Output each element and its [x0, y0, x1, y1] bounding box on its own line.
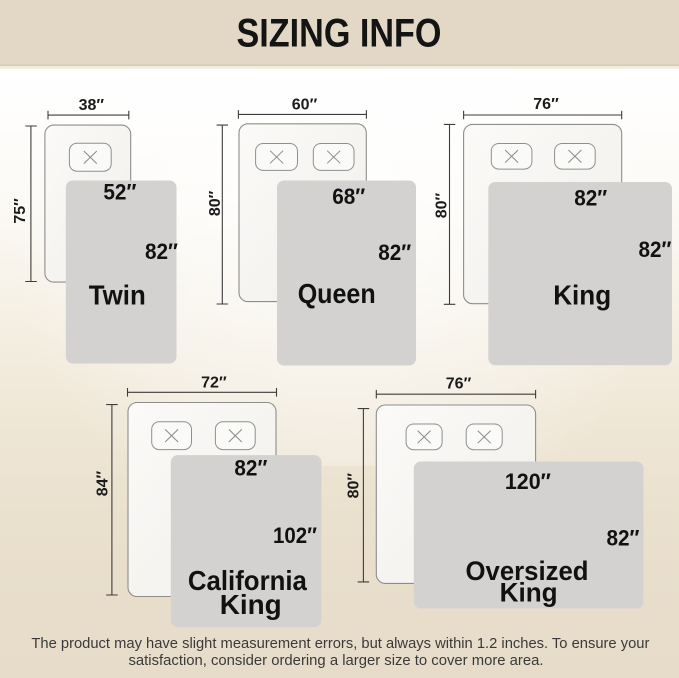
svg-text:82″: 82″	[607, 526, 640, 551]
svg-text:68″: 68″	[332, 184, 365, 209]
svg-text:King: King	[500, 578, 558, 608]
svg-text:80″: 80″	[346, 473, 363, 499]
svg-text:76″: 76″	[446, 376, 472, 393]
svg-text:satisfaction, consider orderin: satisfaction, consider ordering a larger…	[129, 652, 544, 669]
svg-text:38″: 38″	[79, 97, 105, 114]
svg-text:82″: 82″	[145, 239, 178, 264]
svg-text:75″: 75″	[12, 198, 29, 224]
svg-text:Queen: Queen	[298, 278, 376, 309]
svg-text:84″: 84″	[95, 470, 112, 496]
svg-text:120″: 120″	[505, 469, 551, 494]
svg-text:80″: 80″	[207, 190, 224, 216]
svg-text:60″: 60″	[292, 97, 318, 114]
svg-text:82″: 82″	[378, 240, 411, 265]
svg-text:52″: 52″	[103, 180, 136, 205]
svg-text:King: King	[553, 280, 611, 311]
svg-text:Twin: Twin	[89, 280, 146, 311]
svg-text:82″: 82″	[639, 237, 672, 262]
svg-text:72″: 72″	[201, 375, 227, 392]
svg-text:SIZING INFO: SIZING INFO	[237, 12, 442, 56]
svg-text:82″: 82″	[574, 185, 607, 210]
svg-text:102″: 102″	[273, 523, 317, 548]
svg-text:82″: 82″	[234, 456, 267, 481]
svg-text:The product may have slight me: The product may have slight measurement …	[31, 635, 649, 652]
svg-text:King: King	[220, 589, 282, 620]
svg-text:80″: 80″	[434, 192, 451, 218]
svg-text:76″: 76″	[533, 96, 559, 113]
